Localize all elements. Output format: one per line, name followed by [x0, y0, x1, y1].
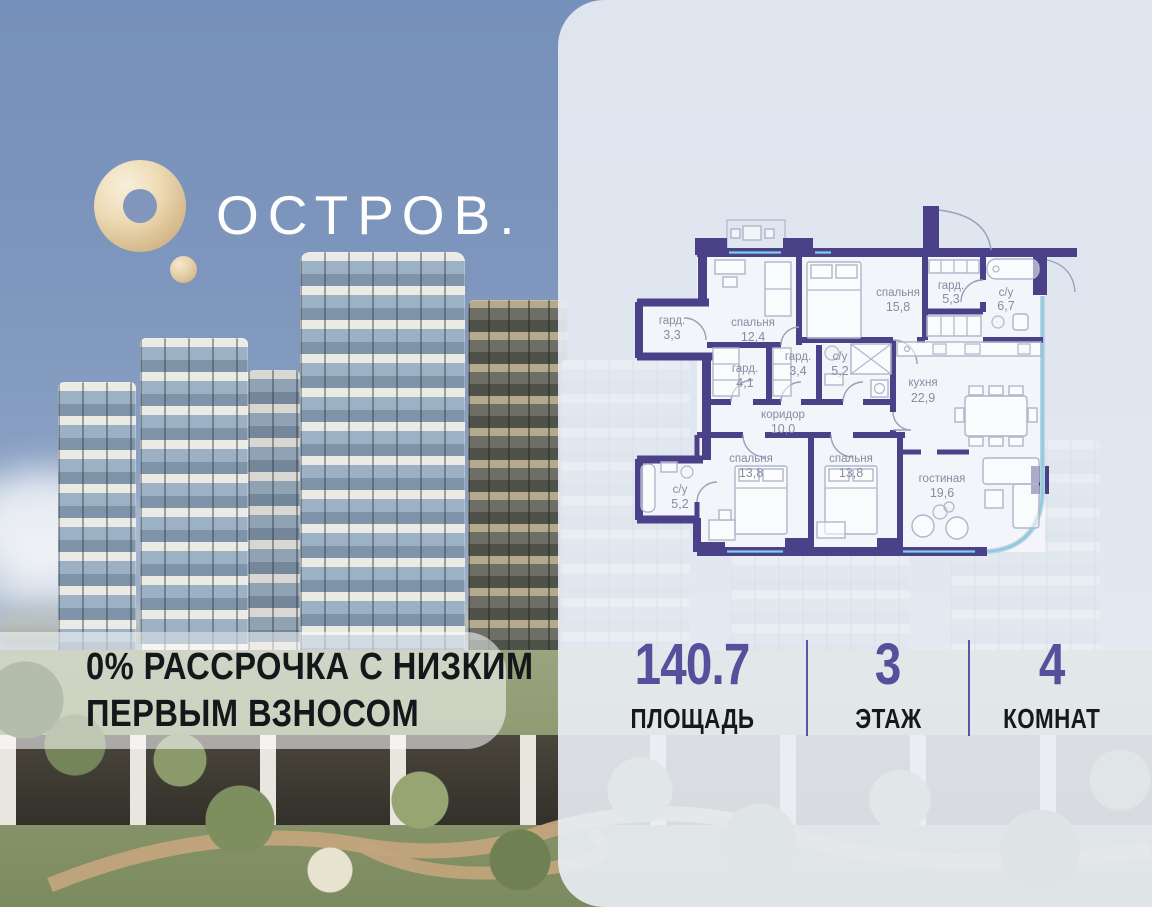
room-area-label: 19,6	[930, 486, 954, 500]
floor-value: 3	[875, 636, 901, 694]
apartment-stats: 140.7 ПЛОЩАДЬ 3 ЭТАЖ 4 КОМНАТ	[578, 636, 1138, 736]
room-area-label: 5,2	[671, 497, 688, 511]
room-area-label: 5,3	[942, 292, 959, 306]
room-name-label: спальня	[876, 287, 920, 299]
room-area-label: 13,8	[839, 466, 863, 480]
room-area-label: 6,7	[997, 299, 1014, 313]
room-name-label: гард.	[732, 363, 758, 375]
room-area-label: 3,4	[789, 364, 806, 378]
promo-ribbon: 0% РАССРОЧКА С НИЗКИМ ПЕРВЫМ ВЗНОСОМ	[0, 632, 506, 749]
room-area-label: 12,4	[741, 330, 765, 344]
room-area-label: 3,3	[663, 328, 680, 342]
room-area-label: 5,2	[831, 364, 848, 378]
stat-area: 140.7 ПЛОЩАДЬ	[578, 636, 806, 736]
room-area-label: 15,8	[886, 300, 910, 314]
floor-plan: гард. 3,3 спальня 12,4 спальня 15,8 гард…	[635, 200, 1090, 585]
area-value: 140.7	[635, 636, 750, 694]
room-name-label: гард.	[938, 280, 964, 292]
gold-dot-icon	[170, 256, 197, 283]
brand-wordmark: ОСТРОВ.	[216, 183, 524, 247]
room-name-label: с/у	[673, 484, 688, 496]
promo-line-2: ПЕРВЫМ ВЗНОСОМ	[86, 691, 534, 738]
room-area-label: 22,9	[911, 391, 935, 405]
room-name-label: гард.	[785, 351, 811, 363]
stat-floor: 3 ЭТАЖ	[808, 636, 968, 736]
room-name-label: гард.	[659, 315, 685, 327]
room-name-label: гостиная	[919, 473, 966, 485]
rooms-label: КОМНАТ	[1003, 703, 1100, 735]
room-name-label: с/у	[999, 287, 1014, 299]
room-name-label: с/у	[833, 351, 848, 363]
brand-logo: ОСТРОВ.	[94, 160, 524, 252]
rooms-value: 4	[1039, 636, 1065, 694]
room-area-label: 4,1	[736, 376, 753, 390]
gold-ring-logo-icon	[94, 160, 186, 252]
room-name-label: спальня	[829, 453, 873, 465]
area-label: ПЛОЩАДЬ	[630, 703, 754, 735]
room-name-label: спальня	[729, 453, 773, 465]
stat-rooms: 4 КОМНАТ	[970, 636, 1134, 736]
room-name-label: спальня	[731, 317, 775, 329]
room-area-label: 10,0	[771, 422, 795, 436]
floor-label: ЭТАЖ	[855, 703, 921, 735]
promo-line-1: 0% РАССРОЧКА С НИЗКИМ	[86, 644, 534, 691]
room-name-label: кухня	[908, 377, 937, 389]
ad-banner: гард. 3,3 спальня 12,4 спальня 15,8 гард…	[0, 0, 1152, 907]
room-name-label: коридор	[761, 409, 805, 421]
promo-text: 0% РАССРОЧКА С НИЗКИМ ПЕРВЫМ ВЗНОСОМ	[86, 644, 534, 738]
room-area-label: 13,8	[739, 466, 763, 480]
